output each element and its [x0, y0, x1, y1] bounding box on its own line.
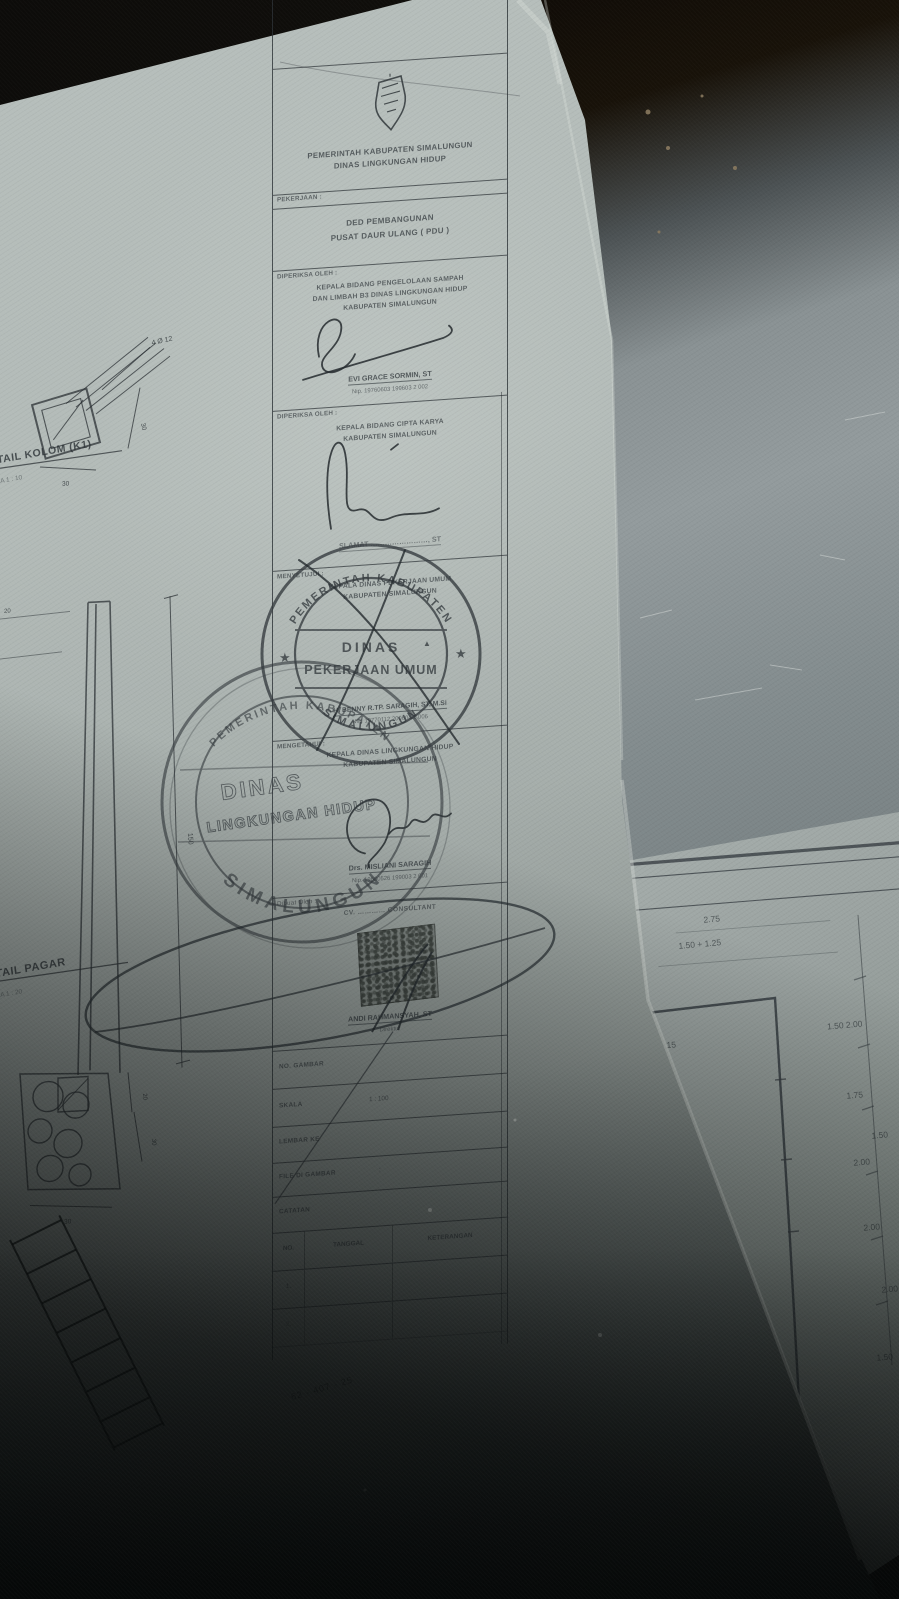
consultant-signature	[372, 944, 432, 1032]
photo-overlay-details: 62 - 407 - 25	[0, 0, 899, 1599]
pencil-handwriting: 62 - 407 - 25	[290, 1375, 354, 1402]
ladder-grid-drawing	[10, 1215, 164, 1450]
floor-scratches	[640, 412, 885, 700]
dust-specks	[646, 95, 738, 234]
photo-of-drawing-titleblock: 2.75 1.50 + 1.25 3.15 1.50 2.00 1.75 1.5…	[0, 0, 899, 1599]
consultant-oval-pen-stroke	[74, 869, 565, 1082]
paper-dust	[364, 1119, 603, 1492]
